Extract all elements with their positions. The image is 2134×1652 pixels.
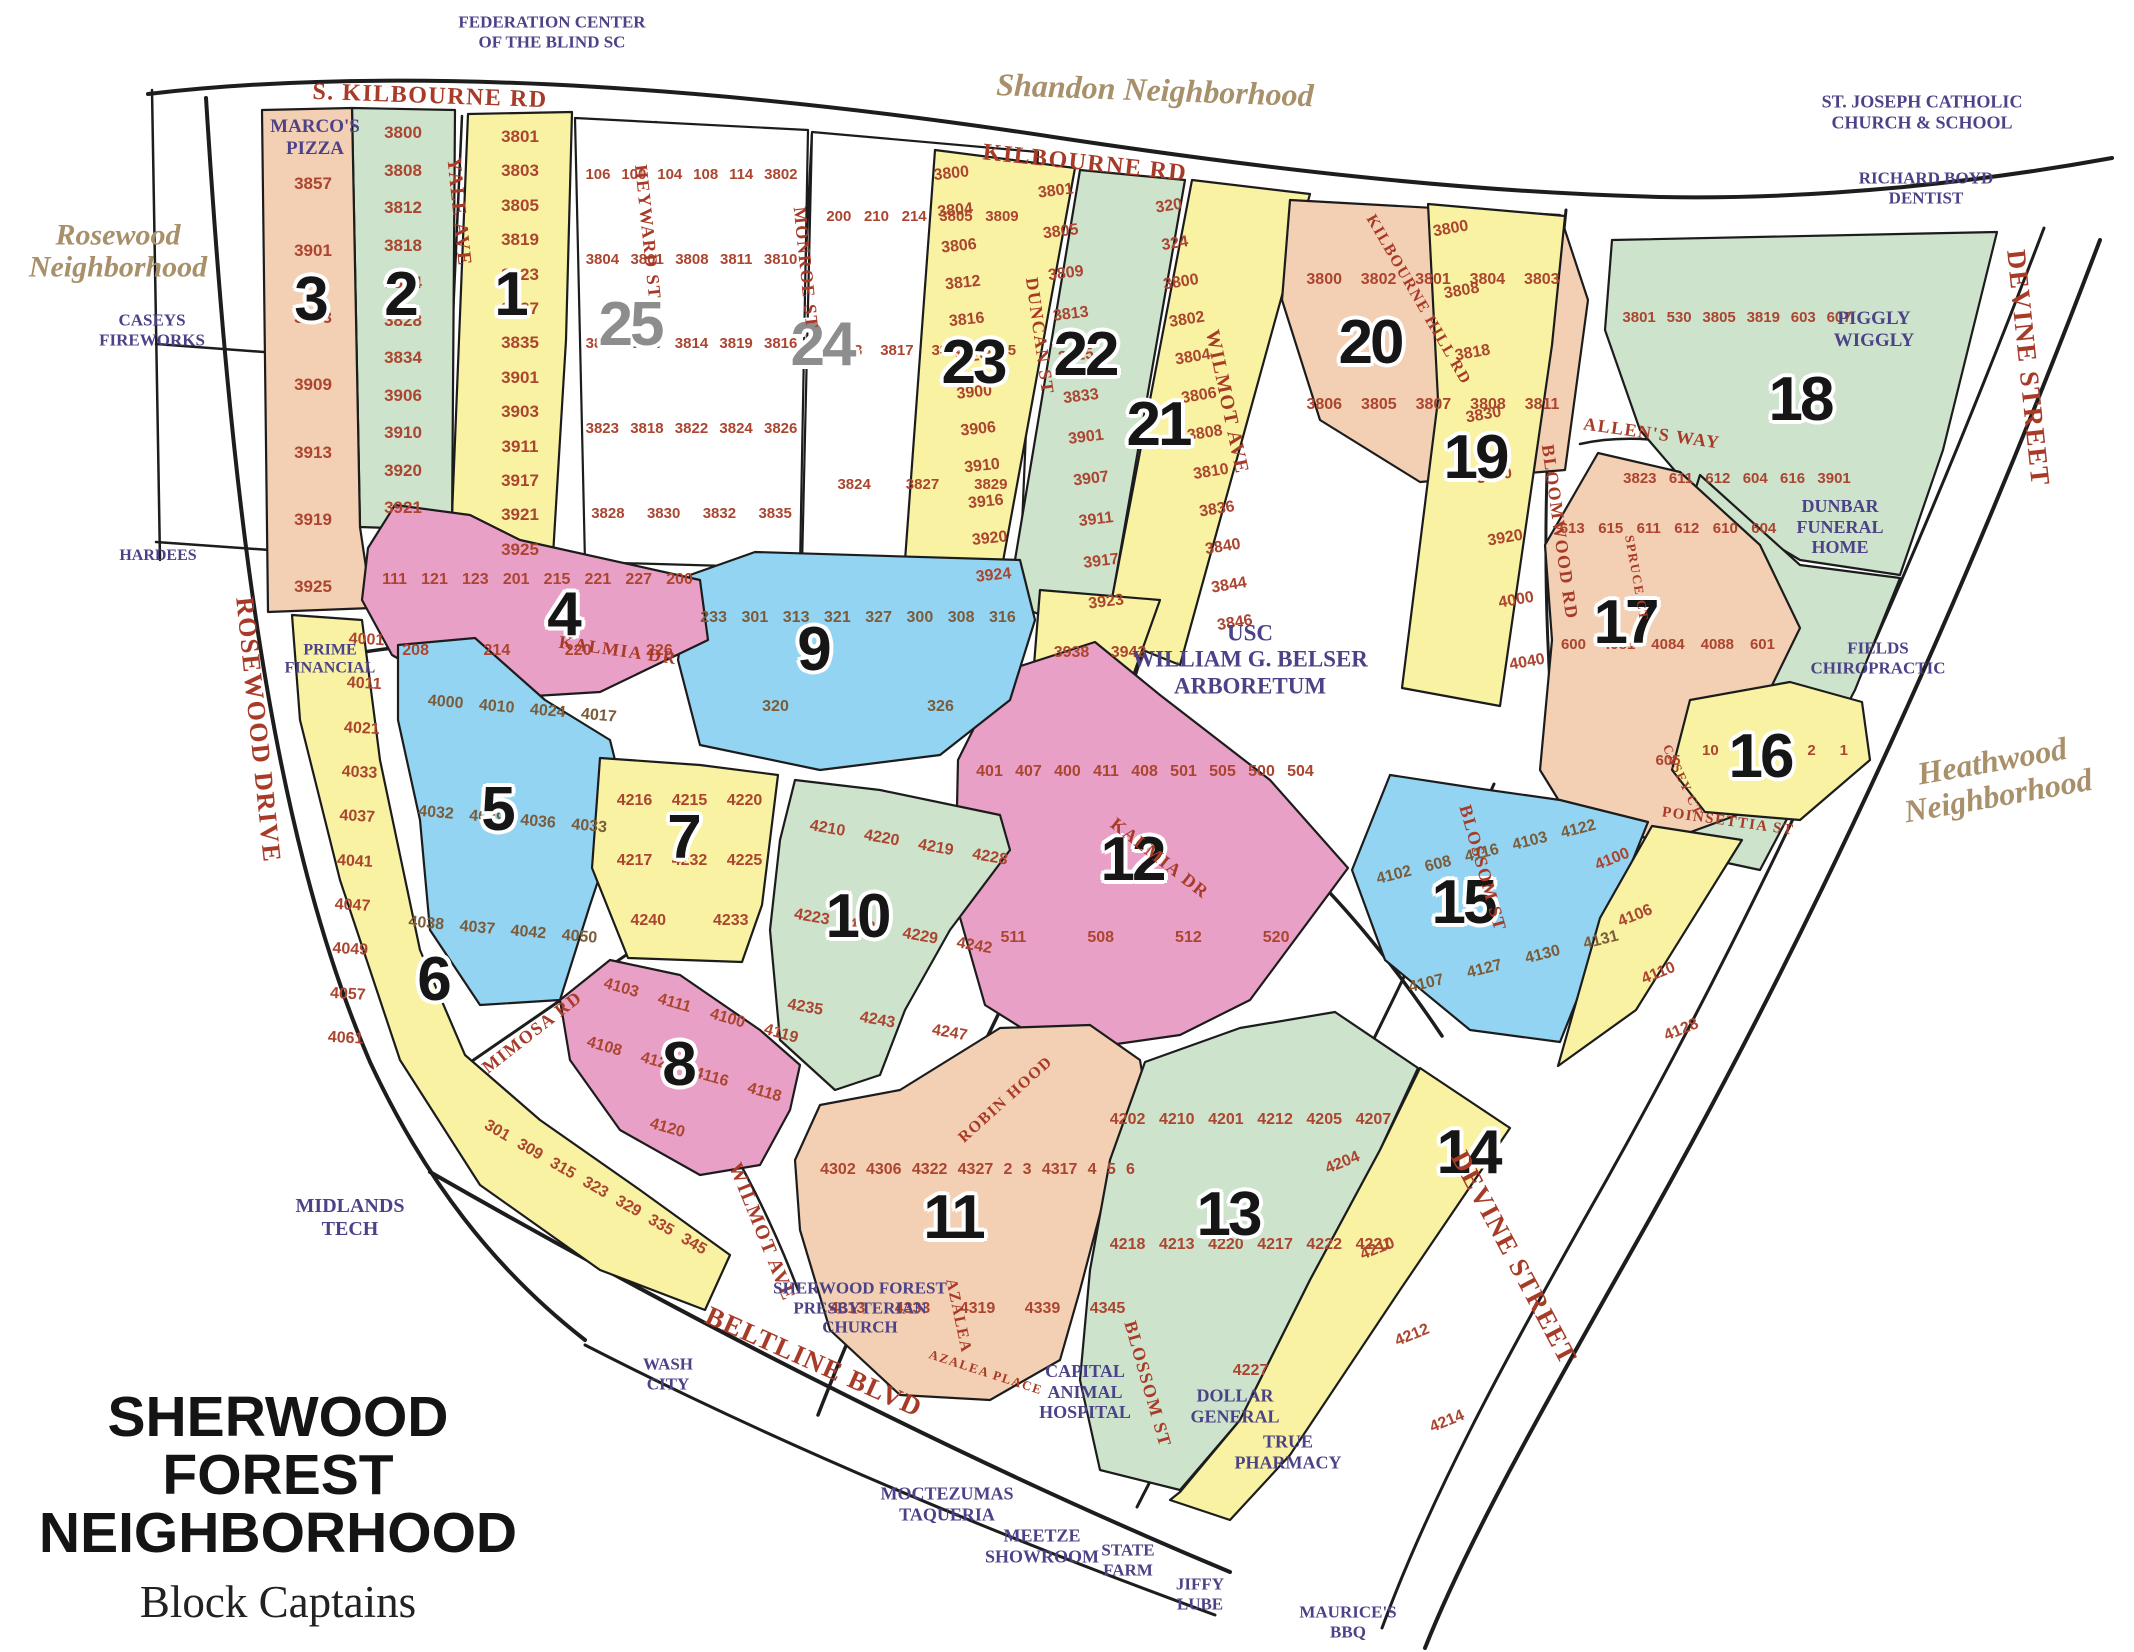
block-number-10: 10: [826, 886, 889, 948]
landmark-label-line: GENERAL: [1190, 1406, 1279, 1427]
landmark-label-line: TECH: [296, 1218, 405, 1241]
landmark-label: MARCO'SPIZZA: [270, 116, 360, 160]
landmark-label: FIELDSCHIROPRACTIC: [1810, 638, 1945, 677]
landmark-label: HARDEES: [119, 547, 196, 565]
landmark-label-line: HARDEES: [119, 547, 196, 565]
landmark-label-line: PHARMACY: [1235, 1452, 1342, 1473]
landmark-label-line: TAQUERIA: [880, 1504, 1013, 1525]
map-subtitle: Block Captains: [18, 1576, 538, 1628]
block-number-24: 24: [791, 314, 854, 376]
block-number-13: 13: [1197, 1184, 1260, 1246]
landmark-label-line: PRESBYTERIAN: [773, 1298, 947, 1318]
landmark-label-line: RICHARD BOYD: [1859, 168, 1994, 188]
landmark-label-line: CITY: [643, 1374, 693, 1394]
landmark-label-line: USC: [1132, 620, 1368, 646]
landmark-label-line: CHURCH: [773, 1318, 947, 1338]
landmark-label-line: JIFFY: [1176, 1574, 1224, 1594]
block-number-9: 9: [797, 619, 828, 681]
landmark-label-line: CAPITAL: [1039, 1361, 1131, 1382]
landmark-label: PIGGLYWIGGLY: [1834, 308, 1915, 352]
landmark-label: CASEYSFIREWORKS: [99, 310, 205, 349]
landmark-label-line: WASH: [643, 1354, 693, 1374]
landmark-label-line: FINANCIAL: [285, 660, 376, 678]
landmark-label: SHERWOOD FORESTPRESBYTERIANCHURCH: [773, 1279, 947, 1338]
block-number-21: 21: [1127, 394, 1190, 456]
landmark-label: USCWILLIAM G. BELSERARBORETUM: [1132, 620, 1368, 699]
landmark-label-line: STATE: [1101, 1540, 1154, 1560]
landmark-label-line: PIZZA: [270, 138, 360, 160]
landmark-label-line: CASEYS: [99, 310, 205, 330]
landmark-label-line: WIGGLY: [1834, 330, 1915, 352]
landmark-label-line: FUNERAL: [1796, 517, 1883, 538]
landmark-label: WASHCITY: [643, 1354, 693, 1393]
landmark-label-line: WILLIAM G. BELSER: [1132, 647, 1368, 673]
landmark-label-line: DOLLAR: [1190, 1385, 1279, 1406]
map-title-line1: SHERWOOD FOREST: [18, 1388, 538, 1504]
block-number-1: 1: [494, 264, 525, 326]
block-number-5: 5: [481, 779, 512, 841]
landmark-label: TRUEPHARMACY: [1235, 1431, 1342, 1472]
landmark-label-line: DUNBAR: [1796, 496, 1883, 517]
landmark-label-line: BBQ: [1299, 1622, 1396, 1642]
block-1-area: [450, 112, 572, 572]
landmark-label-line: OF THE BLIND SC: [458, 32, 645, 52]
landmark-label: CAPITALANIMALHOSPITAL: [1039, 1361, 1131, 1423]
block-number-7: 7: [667, 807, 698, 869]
map-title-line2: NEIGHBORHOOD: [18, 1504, 538, 1562]
block-number-20: 20: [1339, 312, 1402, 374]
landmark-label-line: MEETZE: [985, 1525, 1099, 1546]
landmark-label-line: TRUE: [1235, 1431, 1342, 1452]
landmark-label-line: PIGGLY: [1834, 308, 1915, 330]
block-number-18: 18: [1769, 369, 1832, 431]
landmark-label: DUNBARFUNERALHOME: [1796, 496, 1883, 558]
block-number-25: 25: [599, 294, 662, 356]
landmark-label-line: HOME: [1796, 537, 1883, 558]
landmark-label: JIFFYLUBE: [1176, 1574, 1224, 1613]
landmark-label-line: SHERWOOD FOREST: [773, 1279, 947, 1299]
neighborhood-map: SHERWOOD FOREST NEIGHBORHOOD Block Capta…: [0, 0, 2134, 1652]
block-number-11: 11: [923, 1187, 983, 1249]
landmark-label: ST. JOSEPH CATHOLICCHURCH & SCHOOL: [1822, 91, 2023, 132]
landmark-label-line: LUBE: [1176, 1594, 1224, 1614]
block-number-22: 22: [1054, 324, 1117, 386]
block-number-23: 23: [942, 332, 1005, 394]
landmark-label: MEETZESHOWROOM: [985, 1525, 1099, 1566]
block-number-2: 2: [384, 264, 415, 326]
landmark-label: MOCTEZUMASTAQUERIA: [880, 1483, 1013, 1524]
landmark-label: PRIMEFINANCIAL: [285, 642, 376, 679]
landmark-label-line: FEDERATION CENTER: [458, 12, 645, 32]
map-title-block: SHERWOOD FOREST NEIGHBORHOOD Block Capta…: [18, 1388, 538, 1628]
landmark-label-line: ST. JOSEPH CATHOLIC: [1822, 91, 2023, 112]
neighborhood-script-line: Neighborhood: [29, 252, 207, 284]
landmark-label: RICHARD BOYDDENTIST: [1859, 168, 1994, 207]
landmark-label-line: FIREWORKS: [99, 330, 205, 350]
landmark-label-line: DENTIST: [1859, 188, 1994, 208]
block-number-3: 3: [294, 269, 325, 331]
landmark-label: STATEFARM: [1101, 1540, 1154, 1579]
landmark-label: MAURICE'SBBQ: [1299, 1602, 1396, 1641]
block-number-8: 8: [662, 1034, 693, 1096]
landmark-label-line: ARBORETUM: [1132, 673, 1368, 699]
block-number-6: 6: [417, 949, 448, 1011]
landmark-label-line: MAURICE'S: [1299, 1602, 1396, 1622]
landmark-label-line: FIELDS: [1810, 638, 1945, 658]
neighborhood-script-label: RosewoodNeighborhood: [29, 220, 207, 285]
landmark-label-line: FARM: [1101, 1560, 1154, 1580]
landmark-label-line: MARCO'S: [270, 116, 360, 138]
landmark-label-line: MIDLANDS: [296, 1195, 405, 1218]
landmark-label: DOLLARGENERAL: [1190, 1385, 1279, 1426]
landmark-label-line: ANIMAL: [1039, 1382, 1131, 1403]
landmark-label-line: CHURCH & SCHOOL: [1822, 112, 2023, 133]
block-number-16: 16: [1729, 726, 1792, 788]
neighborhood-script-line: Rosewood: [29, 220, 207, 252]
block-number-19: 19: [1444, 427, 1507, 489]
landmark-label-line: SHOWROOM: [985, 1546, 1099, 1567]
landmark-label-line: HOSPITAL: [1039, 1402, 1131, 1423]
landmark-label-line: PRIME: [285, 642, 376, 660]
landmark-label-line: MOCTEZUMAS: [880, 1483, 1013, 1504]
landmark-label: FEDERATION CENTEROF THE BLIND SC: [458, 12, 645, 51]
landmark-label-line: CHIROPRACTIC: [1810, 658, 1945, 678]
landmark-label: MIDLANDSTECH: [296, 1195, 405, 1241]
